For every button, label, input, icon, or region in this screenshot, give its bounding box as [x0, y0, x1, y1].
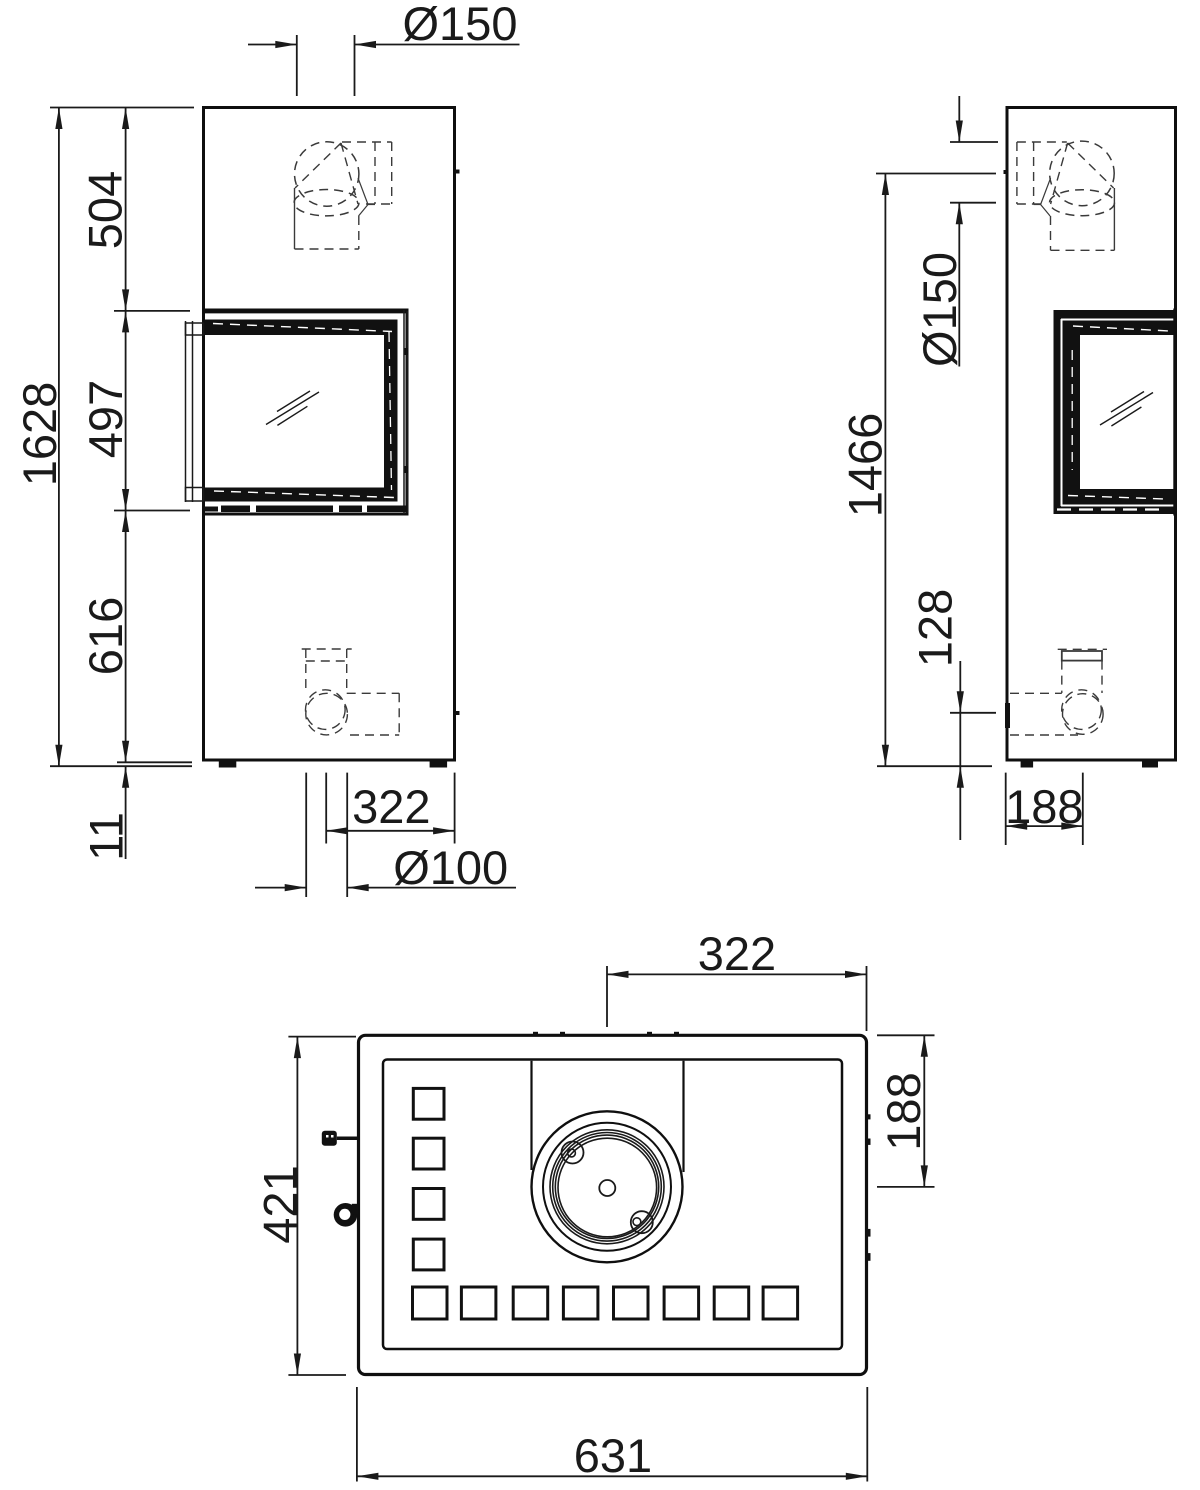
svg-text:322: 322 — [698, 927, 776, 980]
svg-text:421: 421 — [254, 1165, 307, 1243]
svg-text:128: 128 — [909, 589, 962, 667]
svg-text:497: 497 — [79, 380, 132, 458]
svg-text:188: 188 — [877, 1072, 930, 1150]
svg-text:616: 616 — [79, 597, 132, 675]
svg-text:Ø100: Ø100 — [393, 841, 508, 894]
svg-text:Ø150: Ø150 — [913, 252, 966, 367]
svg-text:504: 504 — [79, 171, 132, 249]
svg-text:Ø150: Ø150 — [403, 0, 518, 50]
svg-text:322: 322 — [352, 780, 430, 833]
svg-text:188: 188 — [1005, 780, 1083, 833]
svg-text:1466: 1466 — [839, 413, 892, 518]
svg-text:631: 631 — [574, 1429, 652, 1482]
svg-text:1628: 1628 — [13, 382, 66, 487]
svg-text:11: 11 — [80, 812, 133, 861]
